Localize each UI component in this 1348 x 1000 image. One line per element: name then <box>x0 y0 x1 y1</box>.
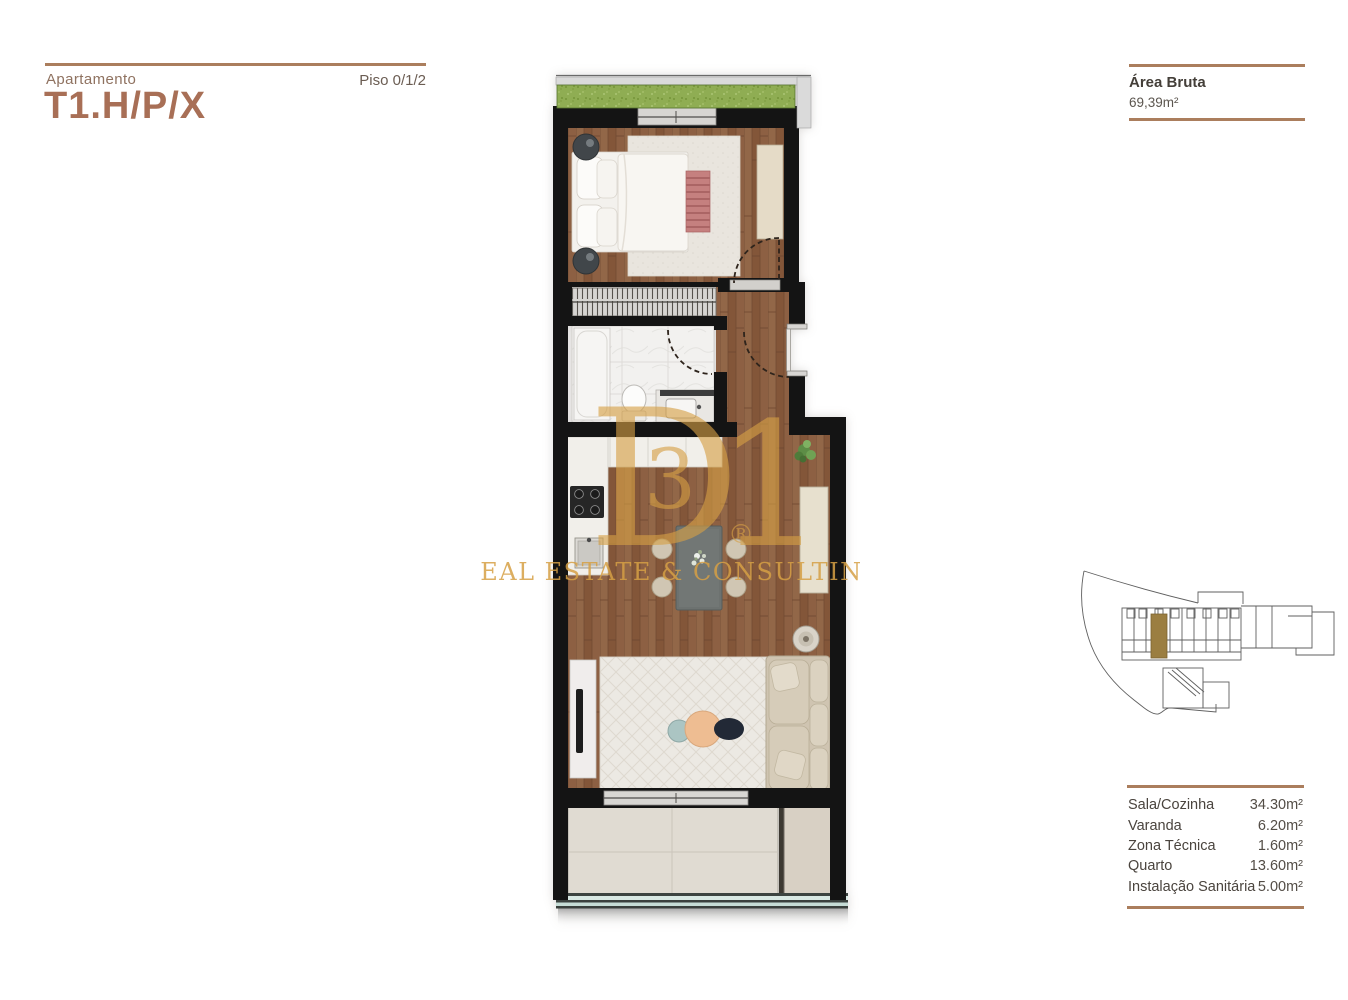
kitchen-sink <box>575 538 603 568</box>
site-boundary <box>1082 571 1216 714</box>
shower <box>574 328 610 420</box>
highlighted-unit <box>1151 614 1167 658</box>
gross-area-label: Área Bruta <box>1129 74 1305 91</box>
room-area-value: 1.60m² <box>1258 838 1303 854</box>
double-bed <box>572 152 688 252</box>
table-row: Varanda 6.20m² <box>1128 815 1303 835</box>
bed-blanket <box>686 171 710 232</box>
balcony <box>556 806 848 926</box>
cooktop <box>570 486 604 518</box>
dining-chair <box>652 577 672 597</box>
room-label: Sala/Cozinha <box>1128 797 1214 813</box>
room-label: Zona Técnica <box>1128 838 1216 854</box>
table-row: Zona Técnica 1.60m² <box>1128 836 1303 856</box>
table-row: Sala/Cozinha 34.30m² <box>1128 795 1303 815</box>
areas-table: Sala/Cozinha 34.30m² Varanda 6.20m² Zona… <box>1127 785 1304 909</box>
room-area-value: 5.00m² <box>1258 879 1303 895</box>
balcony-shadow <box>558 908 848 926</box>
room-label: Quarto <box>1128 858 1172 874</box>
table-row: Quarto 13.60m² <box>1128 856 1303 876</box>
room-area-value: 13.60m² <box>1250 858 1303 874</box>
closet <box>572 288 716 316</box>
dining-chair <box>726 577 746 597</box>
entry-door <box>787 329 791 371</box>
room-label: Varanda <box>1128 818 1182 834</box>
room-label: Instalação Sanitária <box>1128 879 1255 895</box>
room-area-value: 34.30m² <box>1250 797 1303 813</box>
living-room <box>570 656 830 796</box>
dining-chair <box>652 539 672 559</box>
balcony-tiles <box>568 806 778 896</box>
tv <box>576 689 583 753</box>
sideboard <box>800 487 828 593</box>
side-table <box>793 626 819 652</box>
bedroom-door-threshold <box>730 280 780 290</box>
header-divider-line <box>45 63 426 66</box>
sofa <box>766 656 830 796</box>
bathroom <box>572 326 714 422</box>
areas-table-bottom-line <box>1127 906 1304 909</box>
toilet <box>622 385 646 421</box>
floor-plan <box>545 60 860 940</box>
apartment-title: T1.H/P/X <box>44 85 206 128</box>
gross-area-top-line <box>1129 64 1305 67</box>
room-area-value: 6.20m² <box>1258 818 1303 834</box>
balcony-glass-rail <box>556 903 848 907</box>
floor-label: Piso 0/1/2 <box>45 72 426 89</box>
gross-area-bottom-line <box>1129 118 1305 121</box>
dining-chair <box>726 539 746 559</box>
balcony-divider <box>779 806 784 896</box>
table-row: Instalação Sanitária 5.00m² <box>1128 877 1303 897</box>
site-plan-map <box>1070 552 1342 730</box>
vanity-sink <box>656 390 714 422</box>
gross-area-value: 69,39m² <box>1129 95 1305 110</box>
floor-plan-sheet: Apartamento T1.H/P/X Piso 0/1/2 Área Bru… <box>0 0 1348 1000</box>
gross-area-block: Área Bruta 69,39m² <box>1129 74 1305 110</box>
wardrobe <box>757 145 783 239</box>
